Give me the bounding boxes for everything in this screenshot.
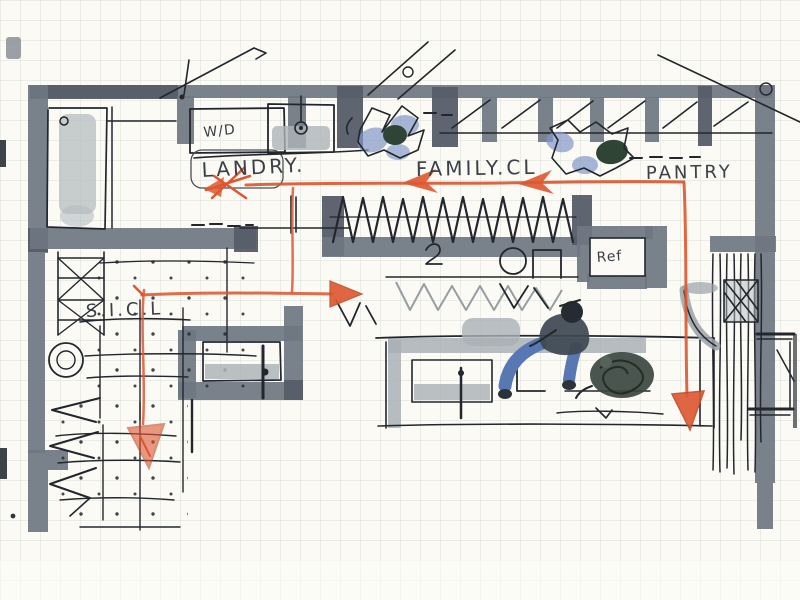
label-refrigerator: Ref bbox=[596, 248, 623, 266]
floor-plan-sketch: LANDRY. FAMILY.CL PANTRY S.I.C.L W/D Ref bbox=[0, 0, 800, 600]
flow-line-connector bbox=[292, 188, 293, 292]
label-family-closet: FAMILY.CL bbox=[416, 155, 538, 181]
shower-fixture bbox=[59, 114, 96, 214]
label-washer-dryer: W/D bbox=[203, 122, 237, 141]
label-pantry: PANTRY bbox=[646, 161, 733, 184]
laundry-pile bbox=[462, 318, 520, 346]
label-sicl: S.I.C.L bbox=[85, 298, 163, 322]
